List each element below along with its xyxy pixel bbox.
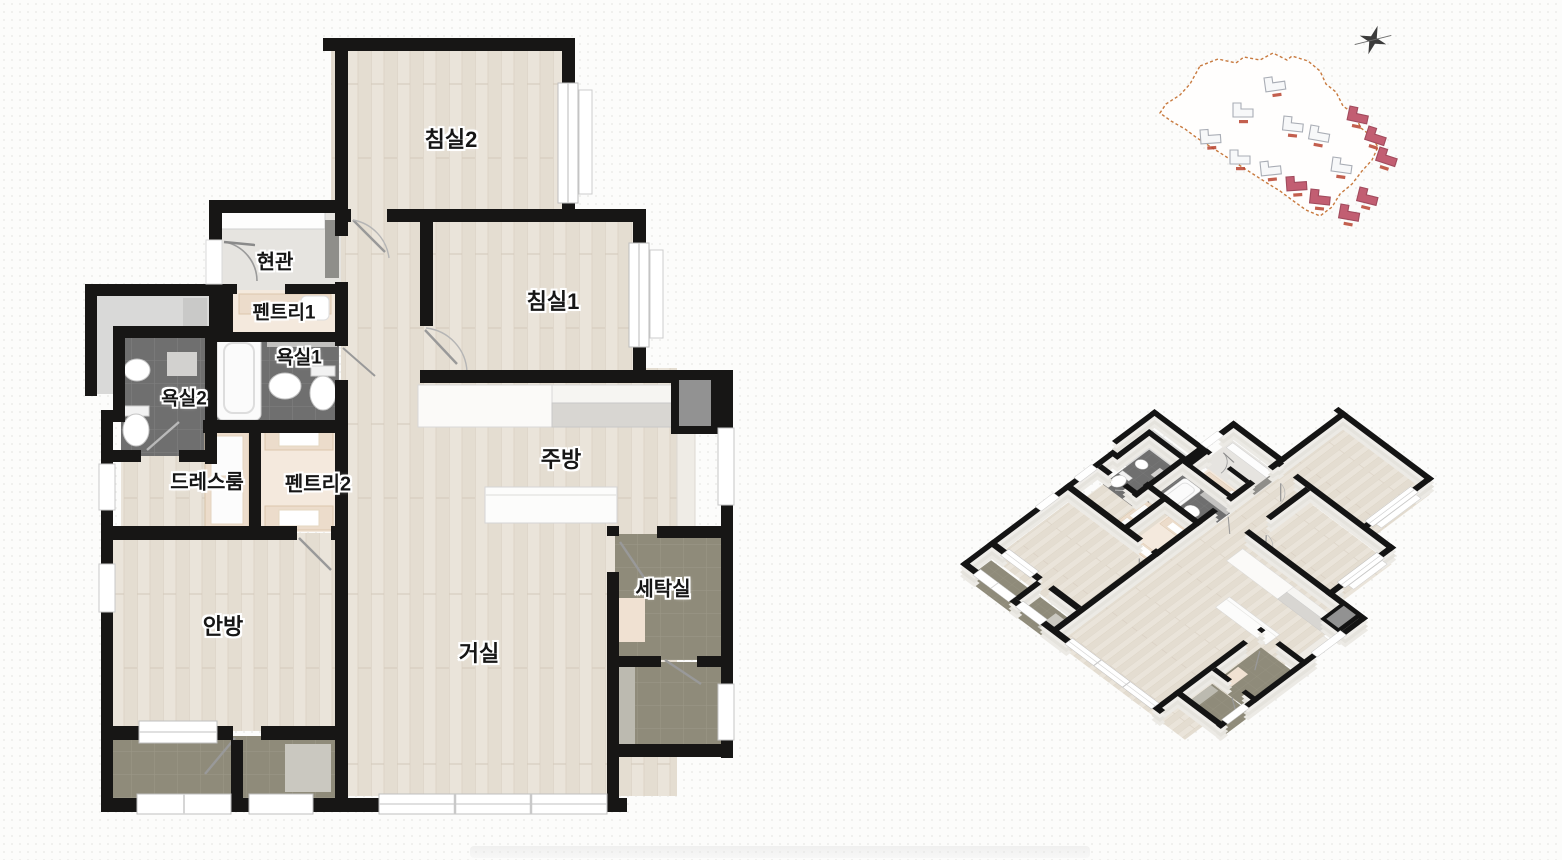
building-highlighted bbox=[1374, 147, 1399, 172]
isometric-drawing bbox=[950, 295, 1510, 840]
room-label-bath2: 욕실2 bbox=[161, 384, 207, 411]
floor-plan-drawing bbox=[85, 38, 745, 828]
room-label-master: 안방 bbox=[203, 609, 243, 641]
room-label-bedroom2: 침실2 bbox=[425, 122, 478, 154]
page-edge-shadow bbox=[470, 846, 1090, 858]
room-label-entrance: 현관 bbox=[257, 246, 294, 275]
room-label-dressroom: 드레스룸 bbox=[170, 466, 244, 495]
room-label-bath1: 욕실1 bbox=[276, 343, 322, 370]
site-map-drawing bbox=[1140, 14, 1430, 239]
room-label-laundry: 세탁실 bbox=[635, 573, 690, 602]
north-star-icon bbox=[1353, 21, 1393, 59]
isometric-view bbox=[950, 295, 1510, 840]
floor-plan-page: { "floor_plan": { "rooms": [ {"id":"bedr… bbox=[0, 0, 1562, 860]
site-map bbox=[1140, 14, 1430, 239]
room-label-living: 거실 bbox=[459, 636, 499, 668]
room-label-pantry2: 펜트리2 bbox=[285, 468, 351, 497]
room-label-bedroom1: 침실1 bbox=[527, 284, 580, 316]
building-highlighted bbox=[1355, 187, 1379, 211]
building-highlighted bbox=[1337, 204, 1360, 227]
room-label-pantry1: 펜트리1 bbox=[252, 298, 315, 325]
floor-plan-2d: 침실2 침실1 현관 펜트리1 욕실1 욕실2 드레스룸 펜트리2 주방 세탁실… bbox=[85, 38, 745, 828]
room-label-kitchen: 주방 bbox=[541, 442, 581, 474]
